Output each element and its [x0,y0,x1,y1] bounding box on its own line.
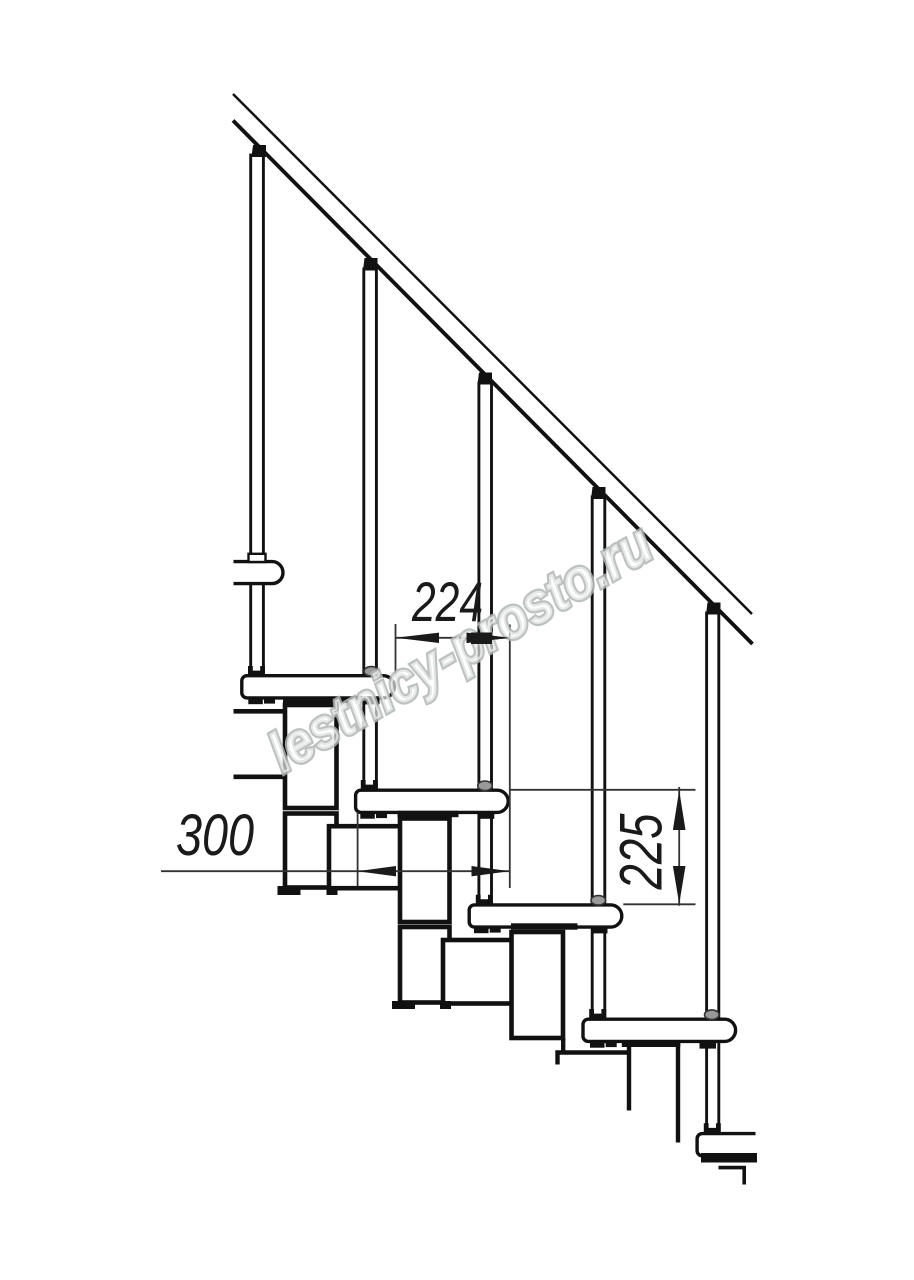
svg-text:225: 225 [608,813,675,890]
svg-text:300: 300 [176,803,254,868]
